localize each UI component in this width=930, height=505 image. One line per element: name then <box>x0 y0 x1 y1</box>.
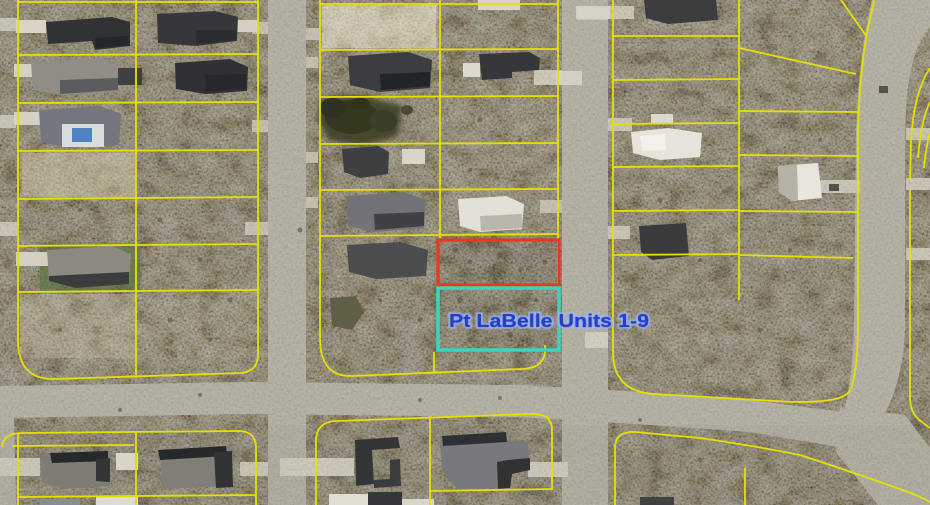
svg-text:Pt LaBelle Units 1-9: Pt LaBelle Units 1-9 <box>449 311 649 331</box>
